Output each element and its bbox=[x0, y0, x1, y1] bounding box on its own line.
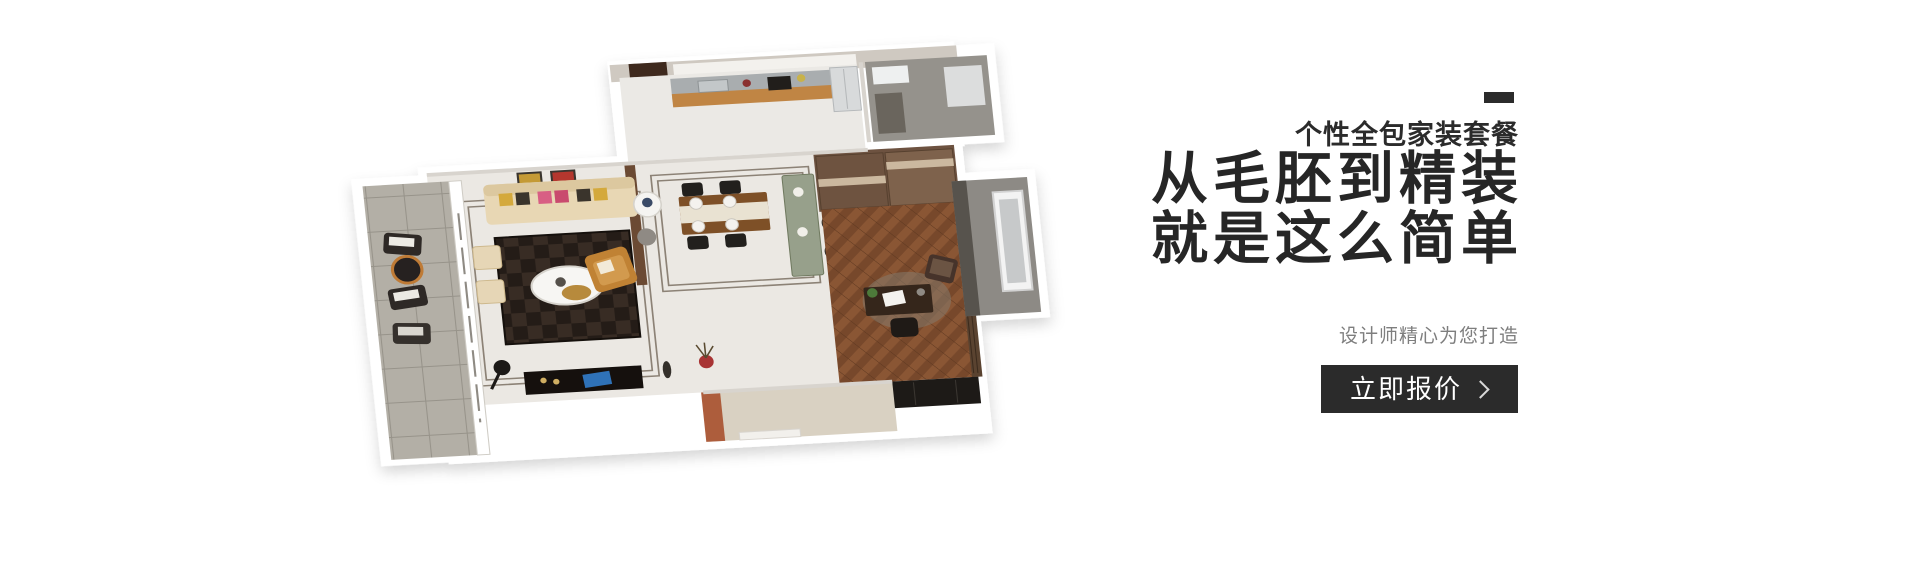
subtitle-text: 设计师精心为您打造 bbox=[1339, 321, 1519, 348]
headline: 从毛胚到精装 就是这么简单 bbox=[1151, 150, 1523, 270]
cta-label: 立即报价 bbox=[1350, 376, 1462, 402]
eyebrow-text: 个性全包家装套餐 bbox=[1295, 113, 1519, 152]
cta-button[interactable]: 立即报价 bbox=[1321, 365, 1518, 413]
accent-dash bbox=[1484, 92, 1514, 103]
chevron-right-icon bbox=[1471, 380, 1489, 398]
headline-line-1: 从毛胚到精装 bbox=[1151, 150, 1523, 210]
hero-banner: 个性全包家装套餐 从毛胚到精装 就是这么简单 设计师精心为您打造 立即报价 bbox=[0, 0, 1920, 564]
headline-line-2: 就是这么简单 bbox=[1151, 210, 1523, 270]
promo-copy: 个性全包家装套餐 从毛胚到精装 就是这么简单 设计师精心为您打造 立即报价 bbox=[918, 0, 1518, 564]
